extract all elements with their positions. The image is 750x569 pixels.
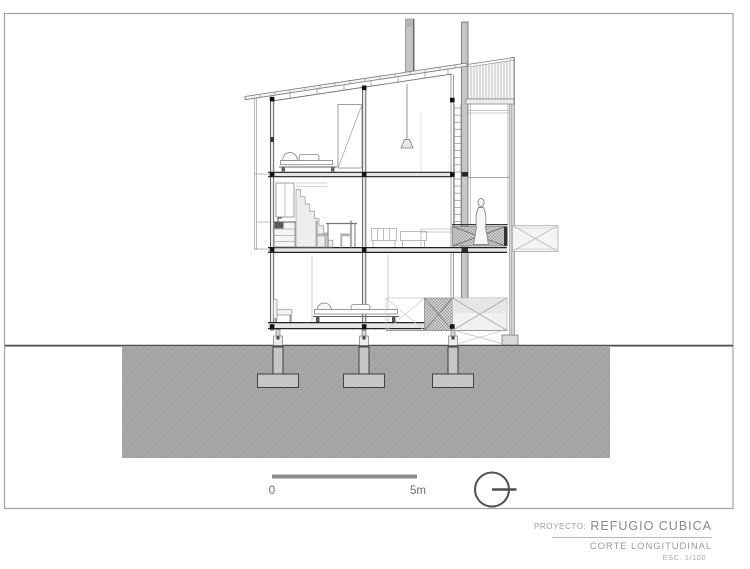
bed-mattress <box>281 161 333 165</box>
section-drawing: 0 5m <box>0 0 750 569</box>
upper-bedroom <box>271 105 422 173</box>
title-block: PROYECTO:REFUGIO CUBICA CORTE LONGITUDIN… <box>534 517 712 562</box>
project-label: PROYECTO: <box>534 522 586 531</box>
title-divider <box>552 537 712 538</box>
armchair <box>274 300 293 323</box>
bridge-truss-outer <box>513 226 559 252</box>
window-rail <box>421 229 452 247</box>
ladder <box>455 104 462 227</box>
drawing-title: CORTE LONGITUDINAL <box>534 541 712 552</box>
louver-screen <box>466 58 514 105</box>
sloped-roof <box>245 63 467 101</box>
project-name: REFUGIO CUBICA <box>590 519 712 533</box>
scale-bar: 0 5m <box>269 475 426 498</box>
annex-frame <box>467 104 510 225</box>
kitchen-unit <box>274 183 296 247</box>
pendant-lamp <box>401 84 413 148</box>
blanket <box>299 155 319 162</box>
scale-bar-end-label: 5m <box>410 485 426 497</box>
lower-walkway <box>386 298 507 344</box>
orientation-icon <box>475 473 517 507</box>
mid-wall <box>363 87 366 330</box>
chimney <box>406 19 414 74</box>
benches <box>372 229 427 248</box>
scale-bar-start-label: 0 <box>269 485 275 497</box>
drawing-scale: ESC. 1/100 <box>534 553 712 562</box>
drawing-sheet: 0 5m PROYECTO:REFUGIO CUBICA CORTE LONGI… <box>0 0 750 569</box>
staircase <box>296 183 333 247</box>
left-wall <box>271 98 274 330</box>
human-figure <box>474 199 489 245</box>
lower-bedroom <box>274 255 400 322</box>
pillow <box>283 153 298 161</box>
